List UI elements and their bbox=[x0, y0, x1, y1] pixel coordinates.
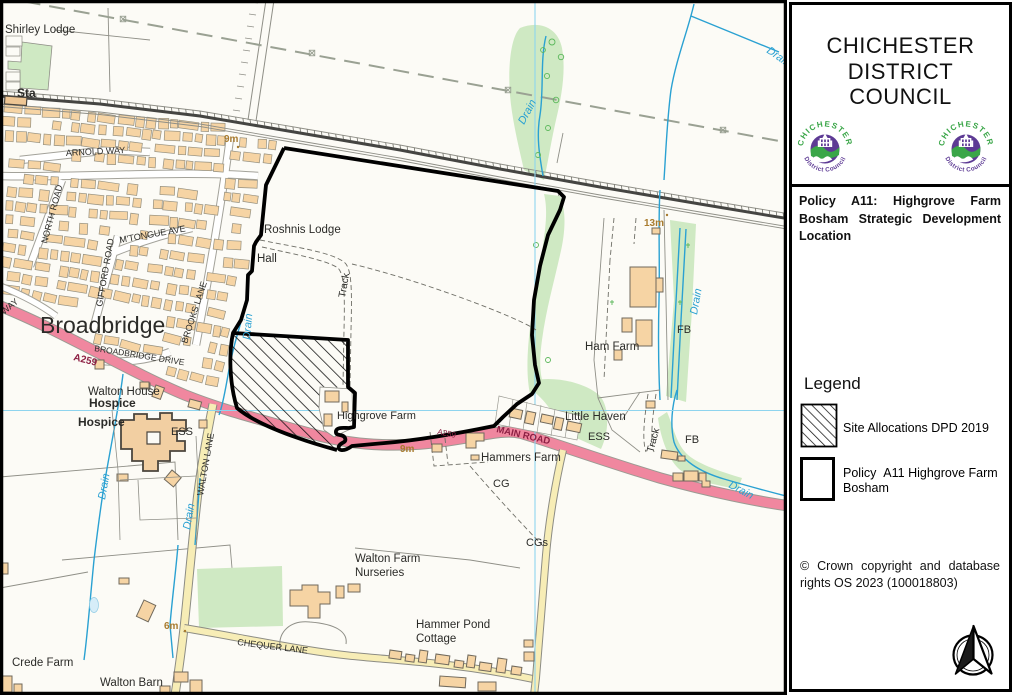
svg-text:CGs: CGs bbox=[526, 537, 549, 549]
svg-text:ESS: ESS bbox=[588, 431, 610, 443]
svg-text:Ham Farm: Ham Farm bbox=[585, 341, 639, 353]
svg-text:Cottage: Cottage bbox=[416, 633, 456, 645]
svg-text:6m: 6m bbox=[164, 621, 179, 632]
svg-text:Broadbridge: Broadbridge bbox=[40, 312, 165, 338]
svg-text:Hall: Hall bbox=[257, 253, 277, 265]
svg-text:Little Haven: Little Haven bbox=[565, 411, 626, 423]
svg-text:Drain: Drain bbox=[241, 313, 255, 340]
svg-text:ESS: ESS bbox=[171, 426, 193, 438]
svg-text:Shirley Lodge: Shirley Lodge bbox=[5, 24, 75, 36]
svg-text:Walton Farm: Walton Farm bbox=[355, 553, 420, 565]
svg-text:9m: 9m bbox=[224, 134, 239, 145]
svg-text:Hammer Pond: Hammer Pond bbox=[416, 619, 490, 631]
svg-text:Walton Barn: Walton Barn bbox=[100, 677, 163, 689]
svg-text:Roshnis Lodge: Roshnis Lodge bbox=[264, 224, 341, 236]
svg-text:13m: 13m bbox=[644, 218, 664, 229]
svg-text:Sta: Sta bbox=[17, 86, 36, 100]
svg-text:Hammers Farm: Hammers Farm bbox=[481, 452, 561, 464]
svg-text:Nurseries: Nurseries bbox=[355, 567, 404, 579]
svg-text:Hospice: Hospice bbox=[78, 415, 125, 429]
svg-text:FB: FB bbox=[685, 434, 699, 446]
svg-text:Hospice: Hospice bbox=[89, 396, 136, 410]
svg-text:9m: 9m bbox=[400, 444, 415, 455]
svg-text:Crede Farm: Crede Farm bbox=[12, 657, 73, 669]
svg-text:Highgrove Farm: Highgrove Farm bbox=[337, 410, 416, 422]
svg-text:FB: FB bbox=[677, 324, 691, 336]
svg-text:CG: CG bbox=[493, 478, 510, 490]
